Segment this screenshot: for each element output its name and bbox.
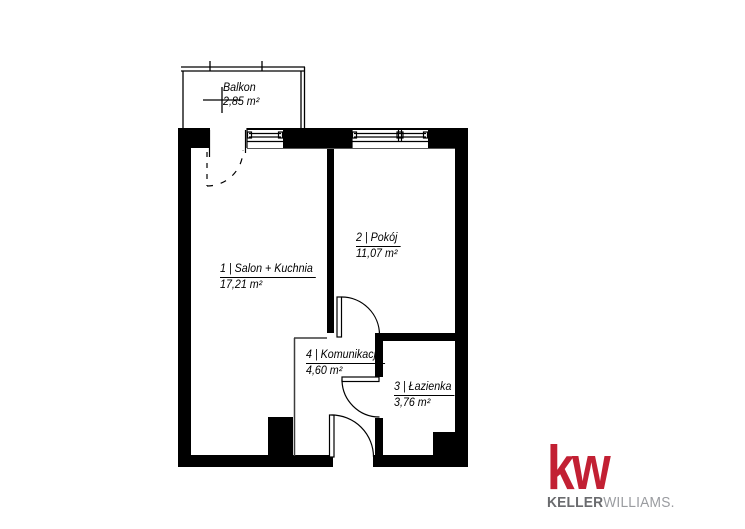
door-balcony (207, 130, 246, 186)
room-name: Balkon (223, 82, 256, 95)
door-swing-arc (342, 380, 380, 418)
room-area: 4,60 m² (306, 365, 385, 378)
room-name: 3 | Łazienka (394, 381, 454, 396)
wall-top-middle-segment (283, 128, 352, 148)
floor-plan-page: Balkon 2,85 m² 1 | Salon + Kuchnia 17,21… (0, 0, 745, 529)
wall-pokoj-lazienka (375, 333, 455, 341)
window-balcony (247, 128, 283, 148)
room-label-balkon: Balkon 2,85 m² (223, 82, 259, 109)
door-swing-arc-dashed (207, 150, 243, 186)
wall-lazienka-lower (375, 418, 383, 455)
shaft-block-salon (268, 417, 293, 455)
wall-left (178, 128, 191, 467)
room-label-komunikacja: 4 | Komunikacja 4,60 m² (306, 349, 385, 378)
kw-logo-wordmark: KELLERWILLIAMS. (547, 496, 675, 511)
door-pokoj (337, 297, 380, 337)
door-lazienka (342, 377, 380, 417)
doors (207, 130, 380, 457)
keller-williams-logo: kw KELLERWILLIAMS. (547, 446, 681, 511)
door-leaf (330, 415, 335, 457)
kw-logo-mark: kw (547, 446, 654, 492)
room-label-lazienka: 3 | Łazienka 3,76 m² (394, 381, 454, 410)
kw-wordmark-williams: WILLIAMS. (603, 495, 674, 511)
wall-bottom-right-segment (373, 455, 468, 467)
wall-right (455, 128, 468, 467)
door-leaf (337, 297, 342, 337)
room-label-salon-kuchnia: 1 | Salon + Kuchnia 17,21 m² (220, 263, 316, 292)
room-area: 3,76 m² (394, 397, 454, 410)
wall-salon-pokoj (327, 148, 334, 333)
pillar-lazienka-corner (433, 432, 455, 455)
room-label-pokoj: 2 | Pokój 11,07 m² (356, 232, 400, 261)
door-entrance (330, 415, 374, 457)
door-swing-arc (332, 415, 374, 457)
wall-top-left-segment (178, 128, 210, 148)
room-name: 1 | Salon + Kuchnia (220, 263, 316, 278)
room-area: 11,07 m² (356, 248, 400, 261)
room-area: 17,21 m² (220, 279, 316, 292)
window-pokoj (352, 128, 428, 148)
room-name: 4 | Komunikacja (306, 349, 385, 364)
wall-bottom-left-segment (178, 455, 333, 467)
walls (178, 128, 468, 467)
room-area: 2,85 m² (223, 96, 259, 109)
room-name: 2 | Pokój (356, 232, 400, 247)
kw-wordmark-keller: KELLER (547, 495, 603, 511)
door-swing-arc (342, 297, 380, 335)
